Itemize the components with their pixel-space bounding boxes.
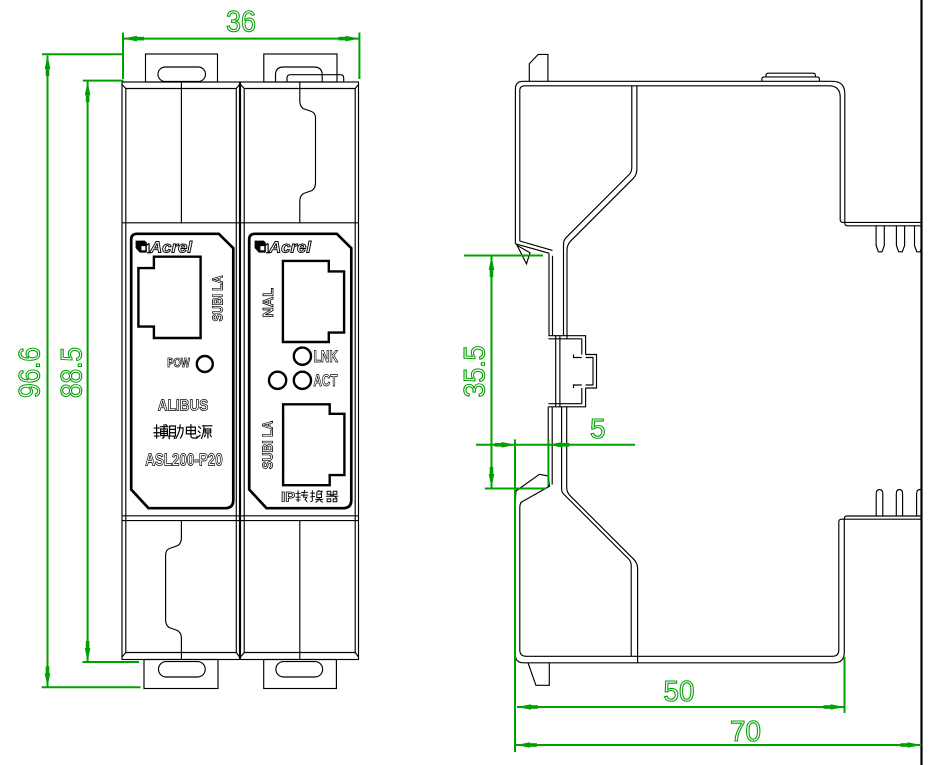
svg-text:96.6: 96.6 (14, 347, 47, 398)
svg-text:88.5: 88.5 (56, 347, 89, 398)
svg-text:SUBI LA: SUBI LA (261, 420, 277, 469)
svg-text:LNK: LNK (314, 347, 339, 366)
svg-text:50: 50 (664, 676, 695, 708)
svg-text:Acrel: Acrel (149, 240, 193, 257)
svg-text:35.5: 35.5 (459, 346, 492, 398)
svg-text:36: 36 (226, 6, 256, 39)
svg-text:ALIBUS: ALIBUS (158, 397, 209, 414)
svg-text:70: 70 (730, 716, 761, 748)
svg-text:IP: IP (281, 488, 295, 504)
svg-text:POW: POW (167, 355, 190, 370)
svg-text:5: 5 (590, 413, 606, 444)
svg-text:ACT: ACT (314, 371, 338, 390)
svg-text:ASL200-P20: ASL200-P20 (145, 450, 223, 470)
svg-text:SUBI LA: SUBI LA (211, 275, 227, 321)
svg-text:NAL: NAL (261, 288, 277, 318)
svg-text:Acrel: Acrel (268, 240, 312, 257)
